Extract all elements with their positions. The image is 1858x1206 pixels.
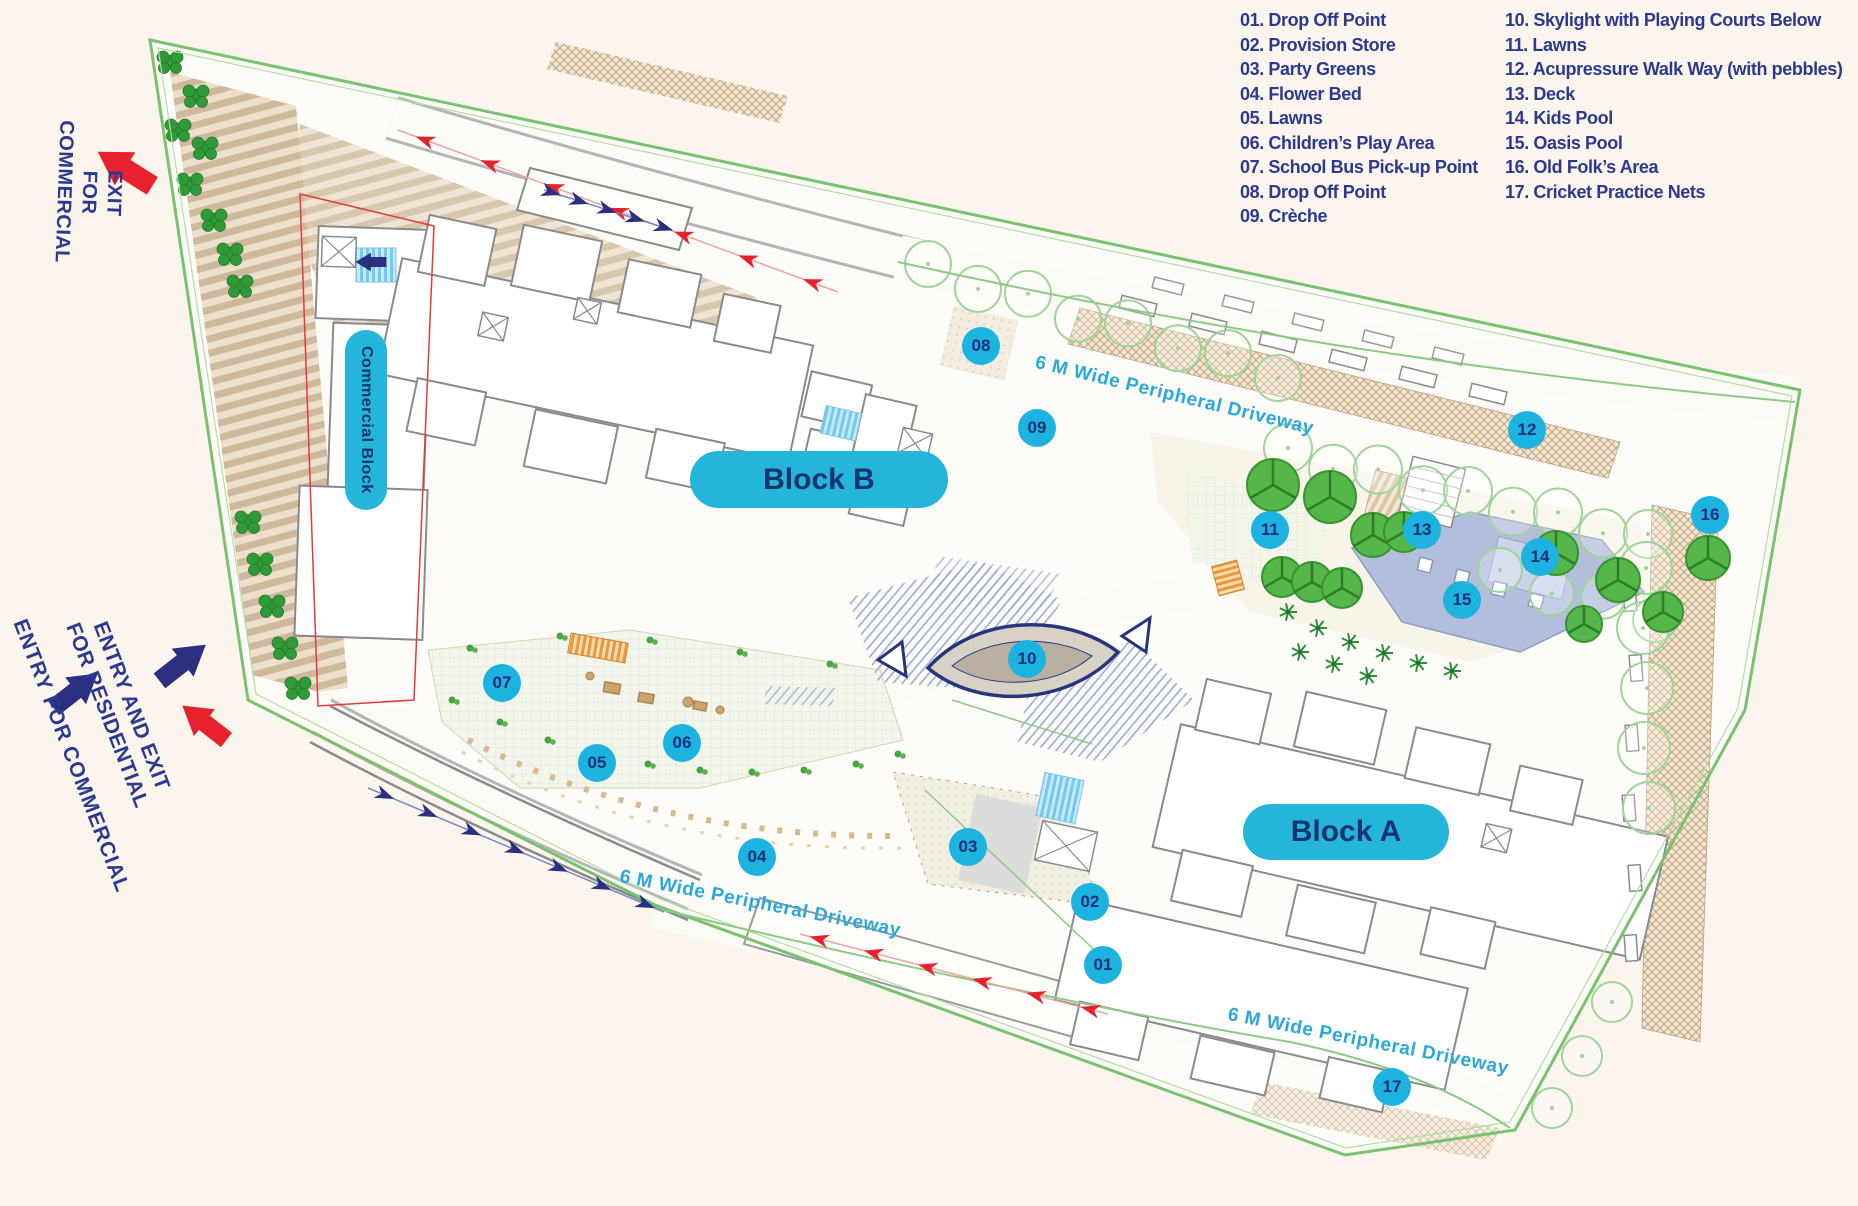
legend-item: 08. Drop Off Point	[1240, 180, 1478, 205]
tree-outline-icon	[905, 241, 951, 287]
vent-shaft-icon	[1481, 824, 1512, 853]
marker-01: 01	[1084, 946, 1122, 984]
commercial-block-label: Commercial Block	[345, 330, 387, 510]
tree-icon	[1686, 536, 1730, 580]
legend-item: 13. Deck	[1505, 82, 1843, 107]
legend-item: 06. Children’s Play Area	[1240, 131, 1478, 156]
block-b-label: Block B	[690, 451, 948, 508]
legend-item: 10. Skylight with Playing Courts Below	[1505, 8, 1843, 33]
legend-item: 11. Lawns	[1505, 33, 1843, 58]
tree-icon	[1322, 568, 1362, 608]
tree-icon	[1304, 471, 1356, 523]
legend-item: 17. Cricket Practice Nets	[1505, 180, 1843, 205]
legend-column-1: 01. Drop Off Point02. Provision Store03.…	[1240, 8, 1478, 229]
legend-column-2: 10. Skylight with Playing Courts Below11…	[1505, 8, 1843, 204]
play-equipment-icon	[716, 706, 724, 714]
bench-icon	[603, 682, 620, 695]
marker-03: 03	[949, 828, 987, 866]
direction-arrow-icon	[374, 785, 397, 805]
vent-shaft-icon	[573, 298, 601, 325]
play-equipment-icon	[683, 697, 693, 707]
legend-item: 07. School Bus Pick-up Point	[1240, 155, 1478, 180]
tree-outline-icon	[1205, 330, 1251, 376]
bench-icon	[638, 692, 654, 703]
marker-04: 04	[738, 838, 776, 876]
marker-10: 10	[1008, 640, 1046, 678]
block-a-label: Block A	[1243, 804, 1449, 860]
legend-item: 03. Party Greens	[1240, 57, 1478, 82]
marker-13: 13	[1403, 511, 1441, 549]
legend-item: 09. Crèche	[1240, 204, 1478, 229]
tree-outline-icon	[1530, 571, 1574, 615]
marker-05: 05	[578, 744, 616, 782]
tree-outline-icon	[1623, 782, 1675, 834]
marker-16: 16	[1691, 496, 1729, 534]
marker-07: 07	[483, 664, 521, 702]
legend-item: 01. Drop Off Point	[1240, 8, 1478, 33]
legend-item: 02. Provision Store	[1240, 33, 1478, 58]
tree-icon	[1247, 459, 1299, 511]
tree-outline-icon	[1444, 467, 1492, 515]
tree-outline-icon	[1592, 982, 1632, 1022]
tree-outline-icon	[1354, 446, 1402, 494]
marker-15: 15	[1443, 581, 1481, 619]
site-plan: 01. Drop Off Point02. Provision Store03.…	[0, 0, 1858, 1206]
marker-09: 09	[1018, 409, 1056, 447]
tree-outline-icon	[1579, 509, 1627, 557]
legend-item: 12. Acupressure Walk Way (with pebbles)	[1505, 57, 1843, 82]
tree-outline-icon	[1478, 548, 1522, 592]
legend-item: 15. Oasis Pool	[1505, 131, 1843, 156]
marker-06: 06	[663, 724, 701, 762]
vent-shaft-icon	[478, 312, 508, 341]
tree-outline-icon	[1562, 1036, 1602, 1076]
tree-icon	[1596, 558, 1640, 602]
vent-shaft-icon	[321, 236, 356, 267]
bench-icon	[1417, 557, 1433, 573]
marker-02: 02	[1071, 883, 1109, 921]
tree-outline-icon	[1621, 662, 1673, 714]
legend-item: 05. Lawns	[1240, 106, 1478, 131]
tree-outline-icon	[1489, 488, 1537, 536]
entry-exit-arrow-icon	[148, 631, 216, 695]
exit-commercial-annotation: EXIT FOR COMMERCIAL	[48, 99, 129, 287]
tree-outline-icon	[1155, 325, 1201, 371]
tree-icon	[1643, 592, 1683, 632]
tree-outline-icon	[1105, 300, 1151, 346]
legend-item: 04. Flower Bed	[1240, 82, 1478, 107]
tree-outline-icon	[1532, 1088, 1572, 1128]
play-equipment-icon	[586, 672, 594, 680]
marker-08: 08	[962, 327, 1000, 365]
tree-icon	[1566, 606, 1602, 642]
tree-outline-icon	[1618, 722, 1670, 774]
tree-outline-icon	[1399, 466, 1447, 514]
bench-icon	[693, 701, 707, 711]
marker-11: 11	[1251, 511, 1289, 549]
tree-outline-icon	[1255, 355, 1301, 401]
bench-icon	[1624, 935, 1638, 962]
exit-commercial-line2: FOR COMMERCIAL	[48, 99, 104, 286]
entry-exit-arrow-icon	[172, 692, 237, 753]
legend-item: 16. Old Folk’s Area	[1505, 155, 1843, 180]
tree-outline-icon	[955, 266, 1001, 312]
tree-outline-icon	[1534, 489, 1582, 537]
marker-14: 14	[1521, 538, 1559, 576]
legend-item: 14. Kids Pool	[1505, 106, 1843, 131]
marker-12: 12	[1508, 411, 1546, 449]
marker-17: 17	[1373, 1068, 1411, 1106]
